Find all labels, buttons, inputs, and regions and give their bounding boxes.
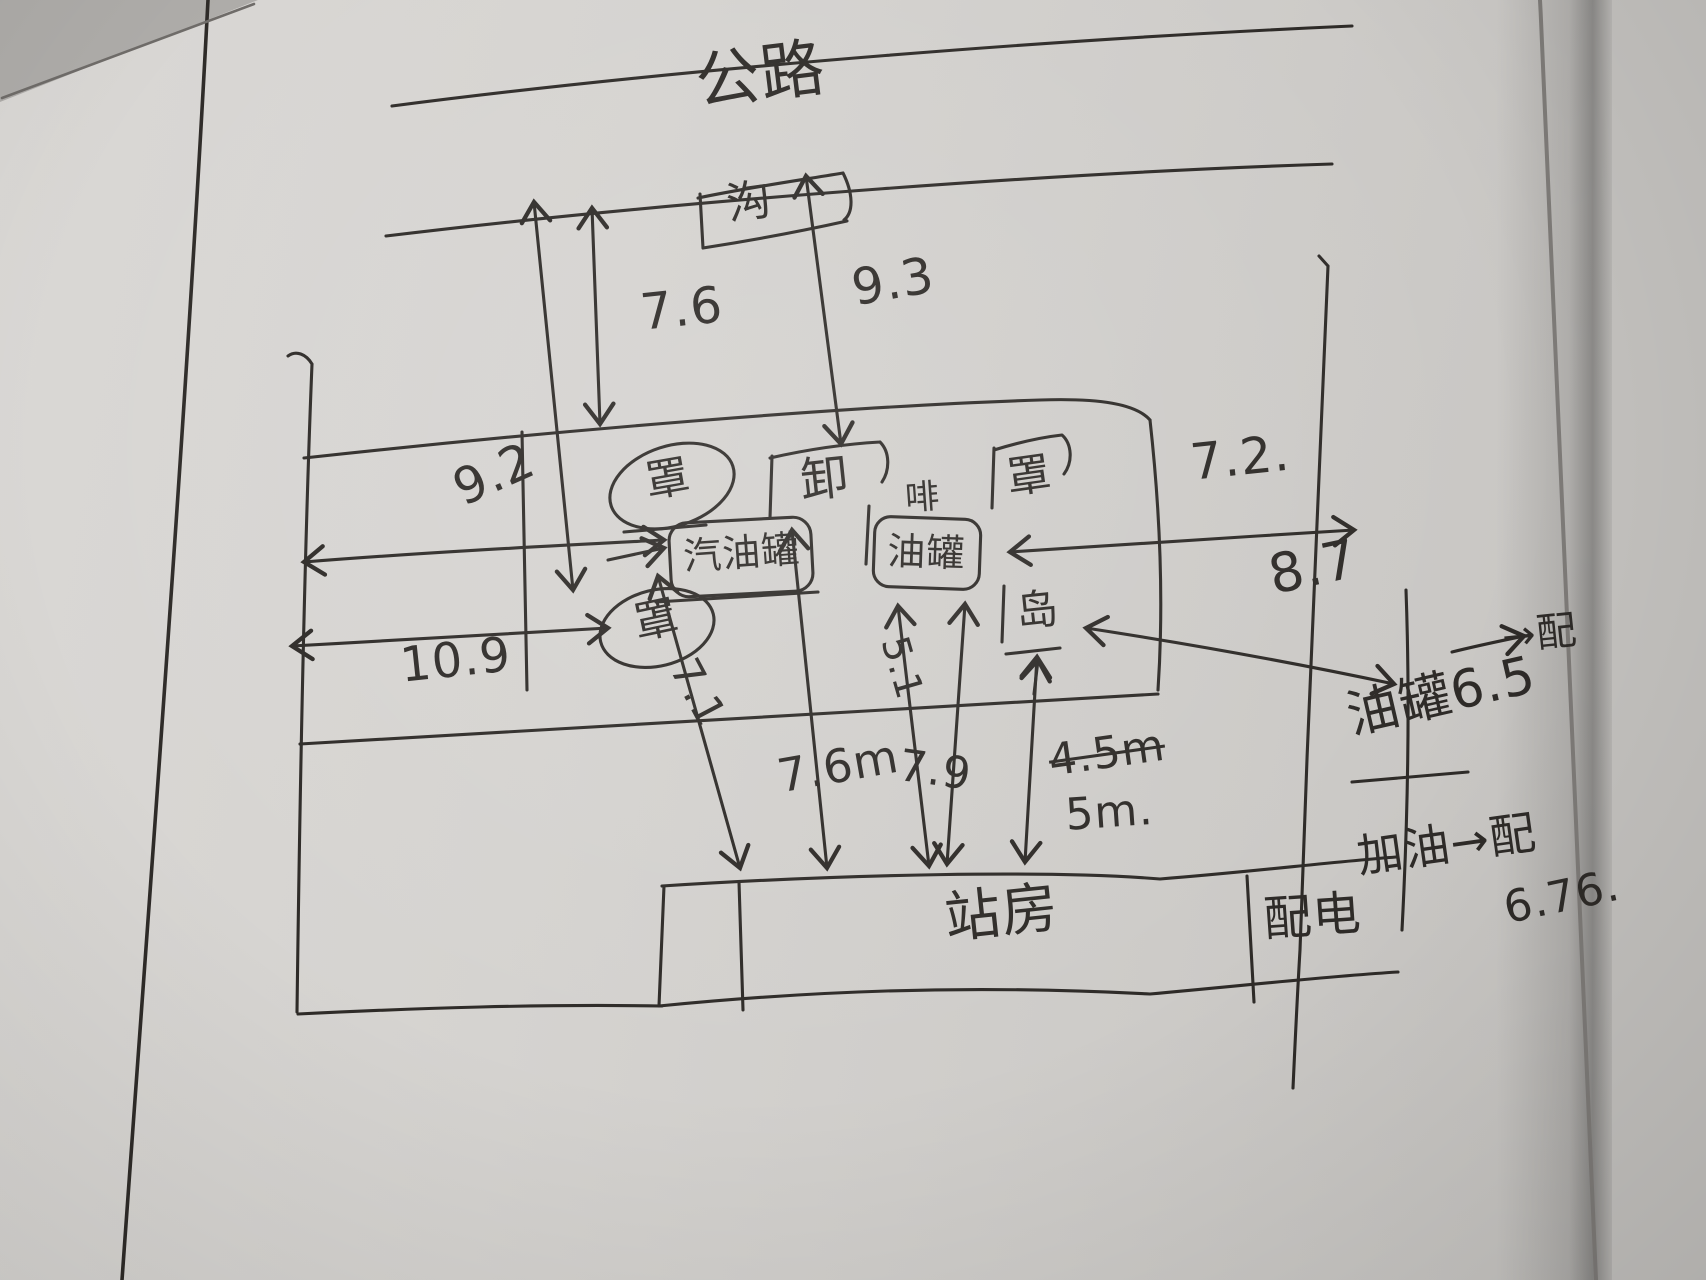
measure-79-label: 7.9 bbox=[896, 744, 974, 798]
measure-72-label: 7.2. bbox=[1188, 428, 1292, 488]
measure-79-line bbox=[947, 604, 965, 864]
road-arrow-93 bbox=[806, 176, 841, 444]
measure-76m-line bbox=[792, 530, 827, 868]
measure-5m-new-label: 5m. bbox=[1064, 788, 1155, 838]
mark-tr-label: 罩 bbox=[1004, 452, 1055, 502]
yard-bottom-line bbox=[298, 1005, 662, 1014]
ditch-label: 沟 bbox=[724, 178, 775, 228]
measure-5m-line bbox=[1025, 657, 1037, 862]
page-spine-line bbox=[122, 0, 208, 1280]
measure-109-label: 10.9 bbox=[398, 630, 513, 689]
measure-76-label: 7.6 bbox=[638, 279, 725, 337]
road-arrow-a bbox=[534, 202, 573, 590]
sketch-lines bbox=[0, 0, 1706, 1280]
margin-note-underline bbox=[1352, 772, 1468, 782]
road-label: 公路 bbox=[692, 36, 829, 115]
station-bottom-line bbox=[659, 972, 1398, 1006]
road-top-line bbox=[392, 26, 1352, 106]
canopy-top-line bbox=[304, 400, 1150, 458]
oil-tank-label: 油罐 bbox=[887, 532, 966, 573]
page-top-edge-line bbox=[2, 4, 254, 98]
vent-label: 啡 bbox=[904, 480, 941, 516]
ditch-box bbox=[698, 173, 851, 248]
mark-bl-label: 罩 bbox=[630, 595, 683, 647]
measure-93-label: 9.3 bbox=[848, 250, 938, 314]
right-boundary-line bbox=[1293, 256, 1328, 1088]
road-bottom-line bbox=[386, 164, 1332, 236]
unload-label: 卸 bbox=[798, 453, 852, 506]
canopy-right-line bbox=[1150, 420, 1161, 690]
left-boundary-line bbox=[288, 353, 312, 1012]
road-arrow-76 bbox=[592, 208, 600, 424]
gasoline-entry-arrow bbox=[608, 548, 664, 560]
gasoline-tank-label: 汽油罐 bbox=[682, 530, 801, 576]
mark-tl-label: 罩 bbox=[642, 454, 694, 505]
oil-tank-tick bbox=[866, 506, 869, 564]
power-room-label: 配电 bbox=[1262, 889, 1363, 944]
station-house-label: 站房 bbox=[942, 880, 1061, 948]
right-boundary-line-2 bbox=[1402, 590, 1408, 930]
station-divider-1 bbox=[739, 882, 743, 1010]
mark-br-label: 岛 bbox=[1014, 588, 1061, 634]
station-left-line bbox=[659, 886, 664, 1006]
notebook-photo: 公路 沟 7.6 9.3 9.2 10.9 7.2. 8.7 罩 卸 啡 罩 汽… bbox=[0, 0, 1706, 1280]
measure-87-line bbox=[1086, 628, 1394, 684]
